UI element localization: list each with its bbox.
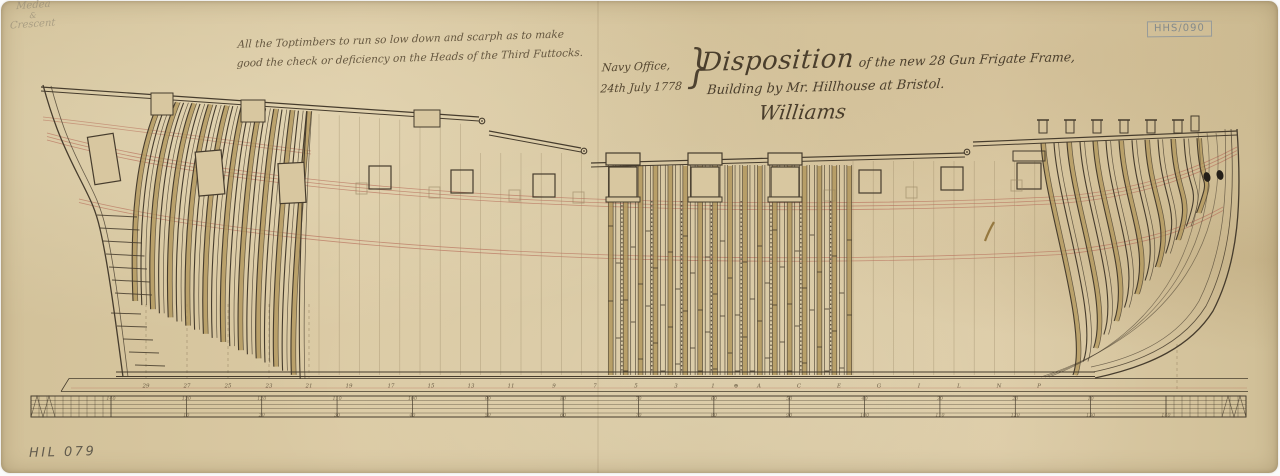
scale-number-bottom: 90 (786, 412, 792, 418)
scale-number-top: 130 (182, 396, 191, 402)
station-band: 2927252321191715131197531⊕ACEGILNP (61, 379, 1248, 392)
plan-title-rest: of the new 28 Gun Frigate Frame, (858, 49, 1076, 70)
scale-number-bottom: 110 (935, 412, 944, 418)
station-label: 19 (346, 384, 353, 390)
scale-number-top: 10 (1088, 396, 1094, 402)
hawse-hole (1215, 169, 1224, 180)
station-label: 21 (305, 384, 313, 390)
scale-number-bottom: 80 (711, 412, 717, 418)
scale-number-bottom: 10 (183, 412, 189, 418)
office-line-2: 24th July 1778 (600, 76, 683, 100)
signature: Williams (758, 99, 848, 125)
station-label: L (956, 384, 961, 390)
scale-number-bottom: 20 (258, 412, 265, 418)
station-label: 7 (593, 384, 597, 390)
scale-number-bottom: 50 (485, 412, 491, 418)
station-label: 13 (468, 384, 475, 390)
plan-title-word: Disposition (700, 44, 855, 78)
scale-number-bottom: 40 (408, 412, 415, 418)
midship-frames (608, 165, 851, 375)
scale-number-bottom: 30 (334, 412, 340, 418)
station-label: I (917, 384, 921, 390)
stern-frames (97, 101, 312, 379)
station-label: C (797, 384, 802, 390)
scale-number-top: 110 (332, 396, 341, 402)
catalog-reference: HIL 079 (29, 444, 97, 461)
scale-number-top: 140 (106, 396, 115, 402)
station-label: A (756, 384, 761, 390)
station-label: 9 (552, 384, 556, 390)
scale-number-top: 100 (408, 396, 417, 402)
scale-number-bottom: 120 (1011, 412, 1020, 418)
scale-number-top: 120 (257, 396, 266, 402)
station-label: 17 (388, 384, 395, 390)
station-label: 1 (711, 384, 715, 390)
scale-number-top: 30 (937, 396, 943, 402)
station-label: 11 (508, 384, 515, 390)
scale-number-top: 20 (1011, 396, 1018, 402)
station-label: E (836, 384, 841, 390)
scale-bar: 1401301201101009080706050403020101020304… (31, 396, 1246, 418)
station-label: 3 (674, 384, 678, 390)
scale-number-top: 70 (635, 396, 641, 402)
catalog-stamp: HHS/090 (1147, 21, 1212, 38)
scale-number-bottom: 60 (560, 412, 566, 418)
scale-number-top: 60 (711, 396, 717, 402)
station-label: 5 (634, 384, 638, 390)
scale-number-bottom: 70 (635, 412, 641, 418)
station-label: 23 (265, 384, 273, 390)
navy-office-block: Navy Office, 24th July 1778 (600, 56, 685, 101)
station-label: P (1036, 384, 1041, 390)
station-label: 25 (224, 384, 232, 390)
station-label: 27 (183, 384, 191, 390)
station-label: N (996, 384, 1002, 390)
office-line-1: Navy Office, (601, 56, 684, 80)
scale-number-top: 50 (786, 396, 792, 402)
station-label: G (877, 384, 882, 390)
station-label: ⊕ (734, 384, 739, 390)
scale-number-top: 40 (861, 396, 868, 402)
scale-number-top: 80 (560, 396, 566, 402)
scale-number-bottom: 140 (1161, 412, 1170, 418)
station-label: 29 (142, 384, 150, 390)
station-label: 15 (428, 384, 435, 390)
scale-number-bottom: 130 (1086, 412, 1095, 418)
plan-sheet: 2927252321191715131197531⊕ACEGILNP140130… (1, 1, 1278, 473)
scale-number-top: 90 (485, 396, 491, 402)
scale-number-bottom: 100 (860, 412, 869, 418)
pencil-ship-names: Medea & Crescent (1, 0, 66, 33)
ink-smudge (985, 222, 994, 241)
